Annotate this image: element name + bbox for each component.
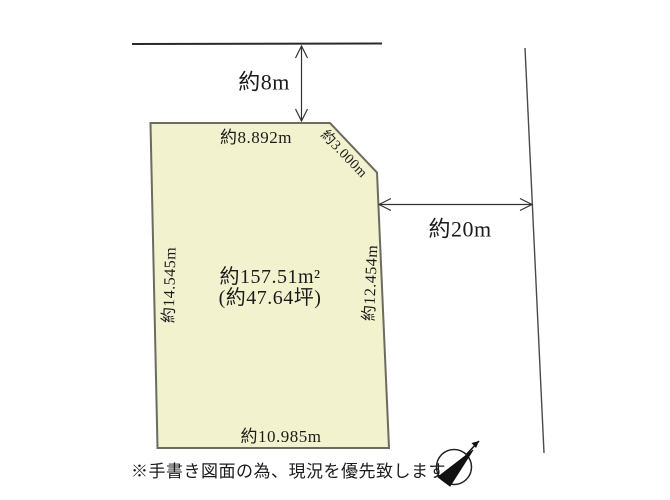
land-plot-diagram: 約8m 約8.892m 約3.000m 約20m 約14.545m 約12.45…	[0, 0, 670, 500]
top-boundary-line	[132, 44, 382, 45]
plot-drawing	[0, 0, 670, 500]
bottom-edge-label: 約10.985m	[241, 428, 322, 446]
right-boundary-line	[525, 48, 544, 453]
area-square-meters: 約157.51m²	[219, 267, 322, 288]
top-setback-label: 約8m	[238, 70, 290, 93]
area-label: 約157.51m² (約47.64坪)	[219, 267, 322, 309]
right-setback-label: 約20m	[428, 217, 491, 240]
handwritten-note: ※手書き図面の為、現況を優先致します。	[131, 463, 462, 481]
top-edge-label: 約8.892m	[220, 129, 292, 147]
right-edge-label: 約12.454m	[362, 244, 382, 321]
left-edge-label: 約14.545m	[162, 247, 181, 324]
area-tsubo: (約47.64坪)	[219, 288, 322, 309]
horizontal-dimension-arrow	[379, 199, 532, 211]
vertical-dimension-arrow	[296, 46, 308, 121]
